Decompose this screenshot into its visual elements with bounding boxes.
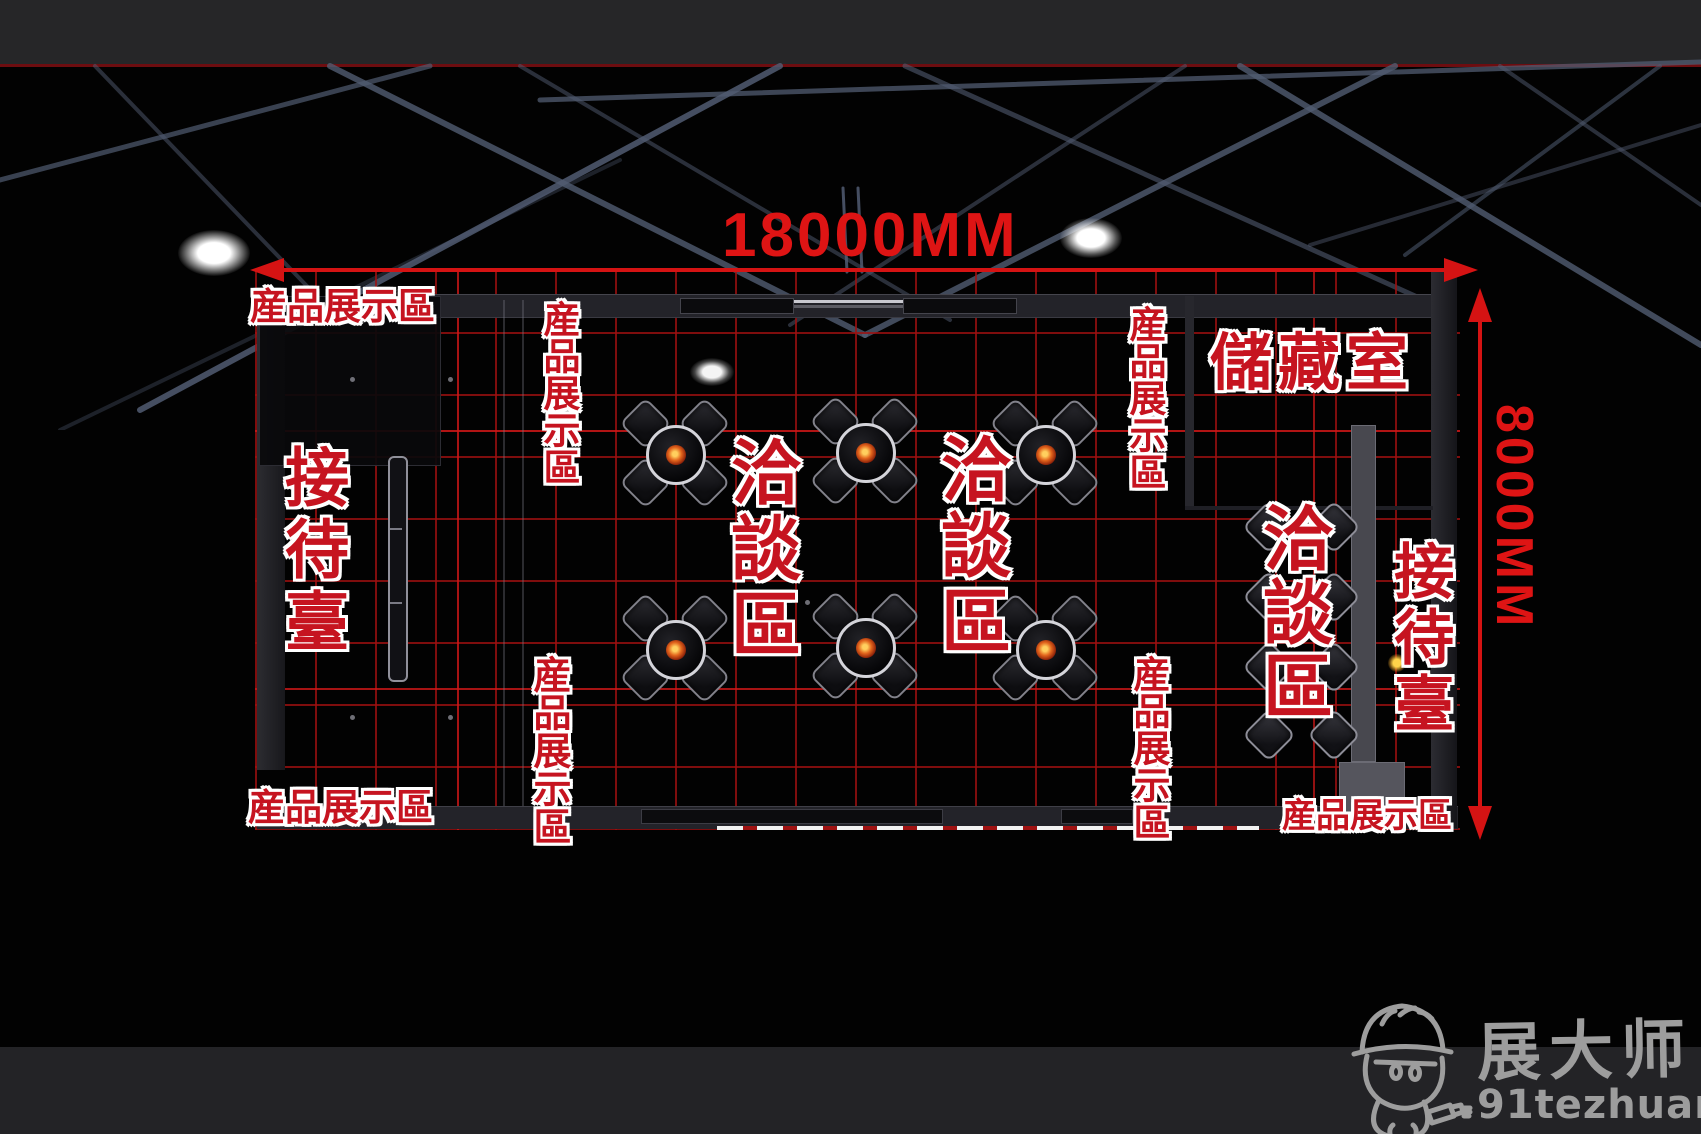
floor-fixture-dot [805,600,810,605]
booth-spotlight [690,358,734,386]
display-panel [903,298,1017,314]
storage-room-wall [1185,296,1194,510]
counter-segment-line [390,528,402,530]
width-dimension-arrowhead-right [1444,258,1478,282]
booth-floor-plan-render: 18000MM 8000MM 産品展示區 産品展示區 産品展示區 産品展示區 産… [0,0,1701,1134]
height-dimension-label: 8000MM [1484,404,1544,630]
table-centerpiece [666,640,686,660]
table-centerpiece [666,445,686,465]
label-product-display-left-top: 産品展示區 [538,300,578,485]
watermark: 展大师 91tezhuang.com [1335,990,1701,1134]
width-dimension-arrowhead-left [250,258,284,282]
label-product-display-top-left: 産品展示區 [250,287,435,327]
counter-segment-line [390,602,402,604]
floor-fixture-dot [448,715,453,720]
ceiling-light-left [178,230,250,276]
table-centerpiece [1036,640,1056,660]
floor-fixture-dot [350,715,355,720]
label-product-display-bottom-right: 産品展示區 [1282,798,1452,835]
meeting-table-group [809,592,921,704]
ceiling-light-right [1060,218,1122,258]
table-centerpiece [1036,445,1056,465]
table-centerpiece [856,638,876,658]
label-reception-right: 接待臺 [1386,540,1451,738]
meeting-table-group [809,397,921,509]
label-product-display-right-bottom: 産品展示區 [1128,655,1168,840]
glass-divider [503,300,505,806]
watermark-brand: 展大师 [1476,998,1694,1094]
meeting-table-group [619,594,731,706]
label-reception-left: 接待臺 [276,444,345,660]
display-counter [641,809,943,824]
height-dimension-arrowhead-top [1468,288,1492,322]
label-negotiation-2: 洽談區 [932,433,1008,661]
height-dimension-arrowhead-bottom [1468,806,1492,840]
bottom-wall-light-strip [717,826,1259,830]
display-panel [680,298,794,314]
label-storage-room: 儲藏室 [1210,330,1414,397]
meeting-table-group [619,399,731,511]
watermark-mascot-builder-icon [1335,990,1475,1134]
watermark-site: 91tezhuang.com [1477,1082,1701,1128]
width-dimension-label: 18000MM [722,200,1019,271]
table-centerpiece [856,443,876,463]
floor-grid-bright-line [457,270,459,830]
label-negotiation-1: 洽談區 [722,436,798,664]
glass-divider [522,300,524,806]
label-product-display-right-top: 産品展示區 [1124,305,1164,490]
display-counter [1061,809,1133,824]
reception-counter-left [388,456,408,682]
label-product-display-bottom-left: 産品展示區 [248,788,433,828]
height-dimension-line [1478,300,1482,828]
floor-fixture-dot [448,377,453,382]
label-product-display-left-bottom: 産品展示區 [528,655,569,845]
floor-fixture-dot [350,377,355,382]
label-negotiation-3: 洽談區 [1254,502,1330,724]
